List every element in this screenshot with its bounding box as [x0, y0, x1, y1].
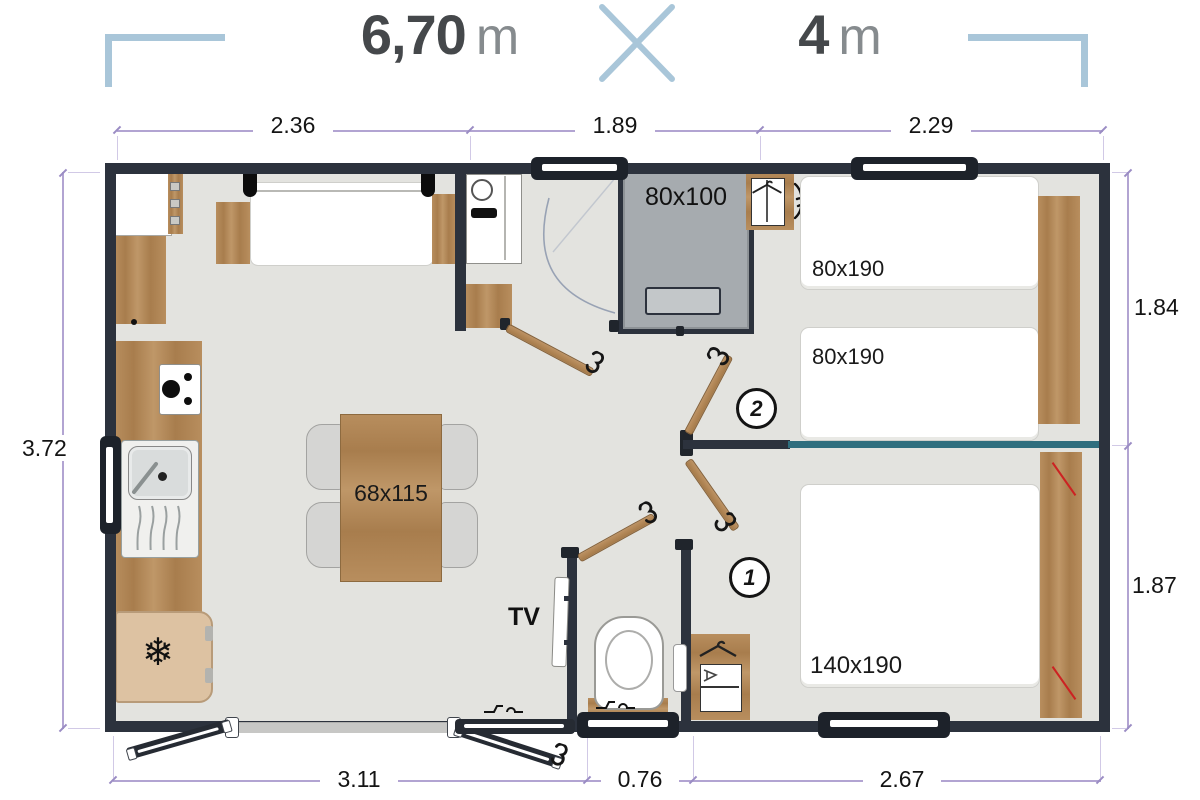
tv-mount — [564, 640, 571, 645]
cabinet-handle — [170, 199, 180, 208]
plan-length-title: 4m — [750, 2, 930, 67]
single-bed-label: 80x190 — [812, 344, 884, 370]
snowflake-icon: ❄ — [128, 630, 188, 674]
chair — [440, 502, 478, 568]
sofa-armrest-right — [432, 194, 456, 264]
witness-line — [1112, 172, 1127, 173]
headboard-panel — [1038, 196, 1080, 424]
window-glass — [588, 720, 668, 727]
room-number-1: 1 — [729, 557, 770, 598]
witness-line — [587, 736, 588, 778]
patio-door-track — [232, 722, 455, 733]
shower-size-label: 80x100 — [623, 183, 749, 212]
dim-bottom-3: 2.67 — [863, 766, 941, 792]
bathroom-left-wall — [455, 163, 466, 331]
chair — [306, 424, 344, 490]
single-bed-label: 80x190 — [812, 256, 884, 282]
partition-wall-teal — [788, 441, 1100, 448]
dim-tick — [59, 724, 67, 732]
plan-width-title: 6,70m — [290, 2, 590, 67]
hanger-icon — [751, 179, 783, 197]
dim-top-2: 1.89 — [575, 112, 655, 138]
door-handle-icon — [545, 741, 578, 774]
hinge-block — [609, 320, 619, 332]
fridge-hinge — [205, 626, 213, 641]
table-size-label: 68x115 — [340, 480, 442, 507]
room-number-label: 2 — [750, 396, 762, 422]
left-corner-bracket-icon — [105, 34, 112, 87]
width-unit: m — [476, 8, 519, 66]
tv-label: TV — [508, 603, 552, 632]
toilet-right-wall — [681, 545, 691, 725]
kitchen-corner-unit — [114, 172, 172, 236]
right-dimension-line — [1127, 172, 1129, 729]
water-heater-dial — [471, 179, 493, 201]
sofa-armrest-left — [216, 202, 250, 264]
hinge-block — [676, 326, 684, 336]
water-heater-panel — [471, 208, 497, 218]
chair — [440, 424, 478, 490]
drying-rack-icon — [132, 504, 186, 550]
dim-tick — [1099, 126, 1107, 134]
dim-bottom-2: 0.76 — [601, 766, 679, 792]
shower: 80x100 — [618, 166, 754, 334]
window-glass — [830, 720, 938, 727]
right-corner-bracket-icon — [1081, 34, 1088, 87]
witness-line — [113, 736, 114, 778]
dim-left: 3.72 — [22, 435, 82, 461]
length-unit: m — [838, 8, 881, 66]
window-glass — [863, 164, 966, 171]
reading-lamp-icon — [421, 171, 435, 197]
right-corner-bracket-icon — [968, 34, 1088, 41]
stove-burner-large — [162, 380, 180, 398]
wardrobe-shelf-line — [701, 686, 739, 688]
times-icon — [592, 2, 682, 84]
left-corner-bracket-icon — [105, 34, 225, 41]
witness-line — [470, 136, 471, 160]
cabinet-knob — [131, 319, 137, 325]
witness-line — [760, 136, 761, 160]
toilet-roll-holder — [673, 644, 687, 692]
length-value: 4 — [798, 3, 828, 66]
sofa — [250, 182, 434, 266]
tv — [551, 577, 569, 667]
room-number-2: 2 — [736, 388, 777, 429]
dim-right-bottom: 1.87 — [1132, 572, 1192, 598]
latch-icon — [482, 702, 526, 718]
clothes-icon — [702, 666, 720, 684]
dim-top-1: 2.36 — [253, 112, 333, 138]
witness-line — [1103, 136, 1104, 160]
hinge-block — [675, 539, 693, 550]
cabinet-handle — [170, 216, 180, 225]
double-bed-label: 140x190 — [810, 652, 902, 680]
outer-wall-right — [1099, 163, 1110, 732]
stove-burner-small — [184, 373, 192, 381]
kitchen-cabinet — [114, 236, 166, 324]
hinge-block — [561, 547, 579, 558]
witness-line — [693, 736, 694, 778]
faucet-icon — [130, 458, 164, 496]
dim-right-top: 1.84 — [1134, 294, 1194, 320]
witness-line — [1112, 728, 1127, 729]
tv-mount — [564, 596, 571, 601]
window-glass — [542, 164, 617, 171]
toilet-bowl — [605, 630, 653, 690]
window-glass — [106, 447, 113, 523]
witness-line — [68, 728, 100, 729]
room-number-label: 1 — [743, 565, 755, 591]
window-glass — [464, 724, 564, 728]
witness-line — [117, 136, 118, 160]
floorplan-stage: 6,70m 4m 2.36 1.89 2.29 3.72 1.84 1.87 3… — [0, 0, 1200, 800]
water-heater-divider — [504, 176, 506, 260]
sofa-backrest — [252, 190, 430, 192]
shower-tray — [645, 287, 721, 315]
dim-top-3: 2.29 — [891, 112, 971, 138]
witness-line — [1112, 445, 1127, 446]
cabinet-handle — [170, 182, 180, 191]
witness-line — [68, 172, 100, 173]
partition-wall — [683, 440, 790, 449]
dim-bottom-1: 3.11 — [320, 766, 398, 792]
chair — [306, 502, 344, 568]
hanger-icon — [698, 640, 738, 660]
fridge-hinge — [205, 668, 213, 683]
width-value: 6,70 — [361, 3, 466, 66]
reading-lamp-icon — [243, 171, 257, 197]
stove-burner-small — [184, 397, 192, 405]
witness-line — [1100, 736, 1101, 778]
